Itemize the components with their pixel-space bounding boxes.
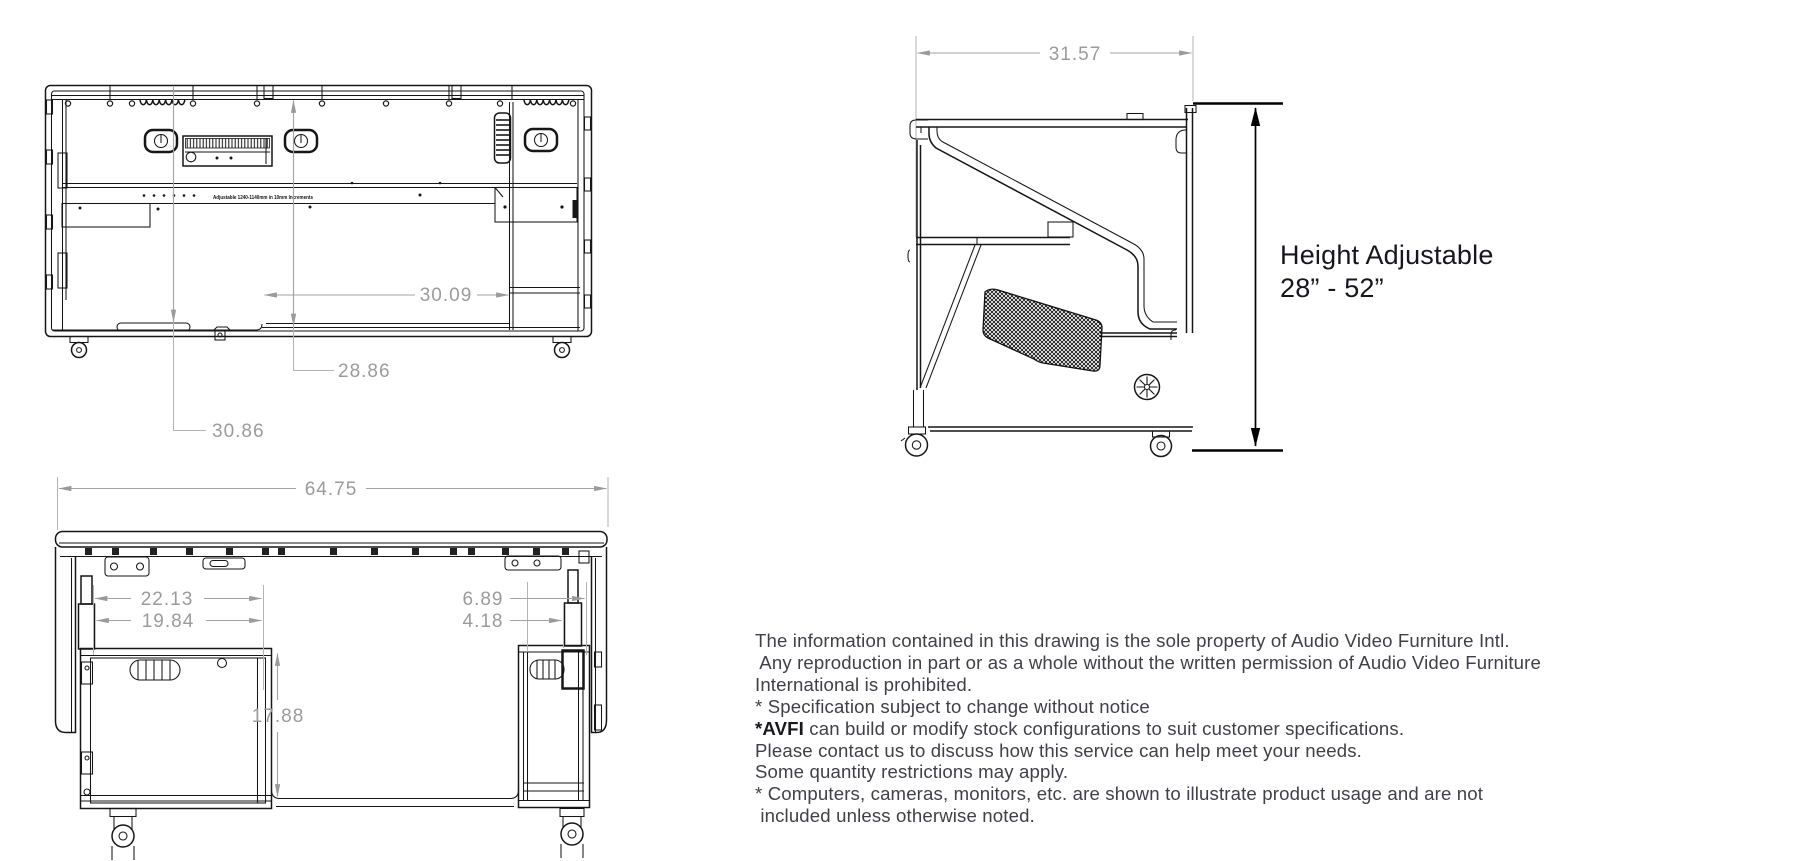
disclaimer-block: The information contained in this drawin… [755, 630, 1541, 827]
caster [901, 427, 928, 456]
dim-opening-height: 17.88 [252, 706, 305, 727]
knee-space-walls [510, 102, 581, 330]
dim-lower-height: 30.86 [212, 421, 265, 442]
disclaimer-line-avfi: *AVFI can build or modify stock configur… [755, 718, 1541, 740]
front-view-drawing: 64.75 [40, 458, 620, 861]
front-view: 64.75 [40, 458, 620, 861]
left-leg [79, 557, 150, 649]
left-cabinet [81, 649, 272, 809]
disclaimer-line: Please contact us to discuss how this se… [755, 740, 1541, 762]
side-profile [908, 106, 1196, 432]
disclaimer-line: * Computers, cameras, monitors, etc. are… [755, 783, 1541, 805]
disclaimer-line: The information contained in this drawin… [755, 630, 1541, 652]
rear-view: Adjustable 1240-1140mm in 10mm Increment… [40, 80, 640, 460]
caster [560, 809, 584, 859]
right-vent-grille [495, 113, 511, 163]
caster [70, 337, 88, 358]
overall-width-dimension: 64.75 [58, 477, 609, 530]
avfi-brand: *AVFI [755, 718, 804, 739]
caster [110, 809, 136, 861]
adjustable-rail-assembly: Adjustable 1240-1140mm in 10mm Increment… [62, 182, 579, 227]
dim-overall-width: 64.75 [305, 479, 358, 500]
drawer-slide-rail [183, 136, 272, 166]
grommet [525, 129, 557, 151]
disclaimer-line: Some quantity restrictions may apply. [755, 761, 1541, 783]
disclaimer-line5-rest: can build or modify stock configurations… [804, 718, 1404, 739]
caster [553, 337, 571, 358]
disclaimer-line: included unless otherwise noted. [755, 805, 1541, 827]
side-view: 31.57 [900, 25, 1300, 470]
dim-upper-height: 28.86 [338, 361, 391, 382]
vent-panel [983, 289, 1102, 371]
height-adjustable-note: Height Adjustable28” - 52” [1280, 239, 1494, 305]
rear-casters [70, 337, 571, 358]
caster [1151, 431, 1172, 457]
rail-adjustment-note: Adjustable 1240-1140mm in 10mm Increment… [213, 195, 313, 201]
knee-space-bottom [272, 790, 519, 807]
dim-depth: 31.57 [1049, 44, 1102, 65]
dim-left-outer: 22.13 [141, 589, 194, 610]
height-dimension [1192, 104, 1283, 451]
dim-inner-width: 30.09 [420, 285, 473, 306]
front-dimensions: 22.13 19.84 6.89 4.18 17.88 [94, 582, 587, 797]
front-casters [110, 809, 584, 861]
dim-right-outer: 6.89 [463, 589, 504, 610]
side-view-drawing: 31.57 [900, 25, 1300, 470]
right-rack [519, 646, 590, 808]
disclaimer-line: International is prohibited. [755, 674, 1541, 696]
rear-view-drawing: Adjustable 1240-1140mm in 10mm Increment… [40, 80, 640, 460]
grommet [285, 130, 317, 152]
dim-right-inner: 4.18 [463, 611, 504, 632]
disclaimer-line: Any reproduction in part or as a whole w… [755, 652, 1541, 674]
fan-icon [1135, 375, 1160, 400]
technical-drawing-page: { "title": "Height adjustable AV desk te… [0, 0, 1811, 861]
depth-dimension: 31.57 [916, 36, 1193, 237]
disclaimer-line: * Specification subject to change withou… [755, 696, 1541, 718]
height-note-line1: Height Adjustable [1280, 240, 1494, 270]
grommet [145, 130, 177, 152]
dim-left-inner: 19.84 [142, 611, 195, 632]
height-note-line2: 28” - 52” [1280, 273, 1384, 303]
